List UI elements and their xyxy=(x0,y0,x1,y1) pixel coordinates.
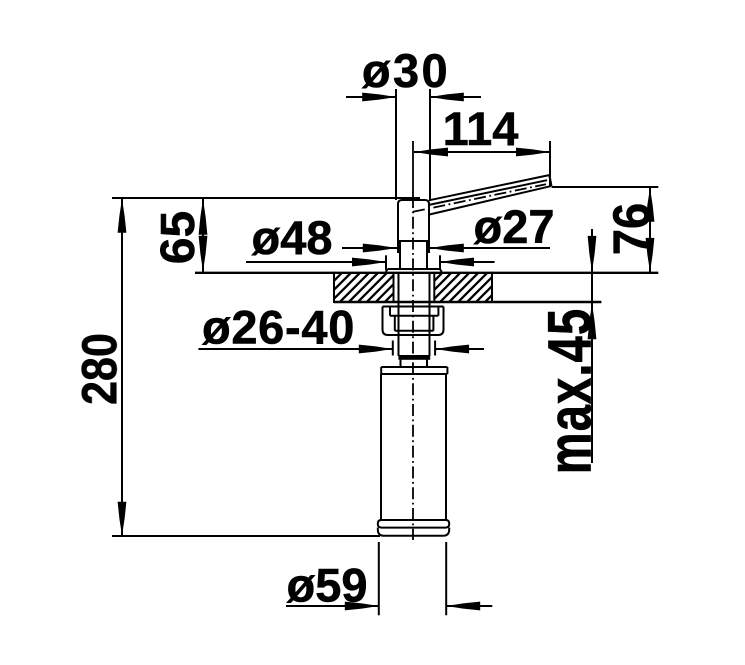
svg-text:max.45: max.45 xyxy=(536,308,604,475)
svg-text:114: 114 xyxy=(443,102,519,155)
svg-text:ø59: ø59 xyxy=(287,559,368,612)
svg-text:76: 76 xyxy=(603,203,661,255)
svg-text:ø48: ø48 xyxy=(252,211,333,264)
svg-text:ø30: ø30 xyxy=(362,44,450,97)
svg-text:ø27: ø27 xyxy=(474,200,555,253)
svg-text:280: 280 xyxy=(71,333,126,405)
svg-text:ø26-40: ø26-40 xyxy=(202,301,355,354)
svg-text:65: 65 xyxy=(152,211,205,264)
